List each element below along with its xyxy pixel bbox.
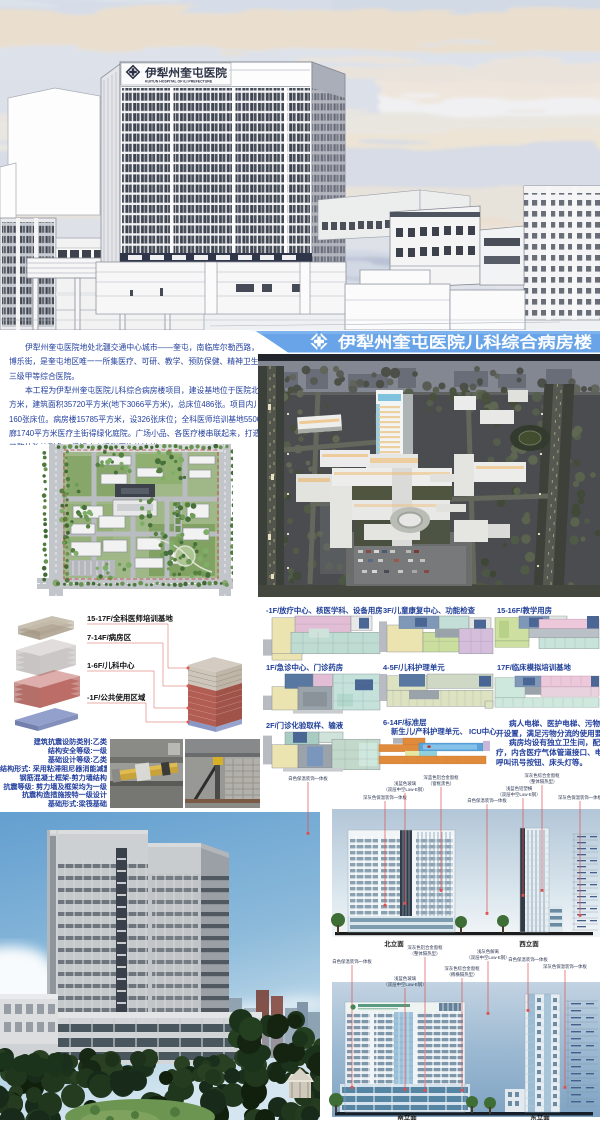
svg-text:东立面: 东立面 bbox=[530, 1113, 550, 1121]
svg-text:-1F/公共使用区域: -1F/公共使用区域 bbox=[87, 692, 146, 702]
svg-text:1-6F/儿科中心: 1-6F/儿科中心 bbox=[87, 660, 135, 670]
svg-text:6-14F/标准层: 6-14F/标准层 bbox=[383, 718, 427, 727]
svg-text:1F/急诊中心、门诊药房: 1F/急诊中心、门诊药房 bbox=[266, 663, 343, 672]
svg-text:4-5F/儿科护理单元: 4-5F/儿科护理单元 bbox=[383, 663, 445, 672]
svg-text:2F/门诊化验取样、输液: 2F/门诊化验取样、输液 bbox=[266, 721, 344, 730]
svg-text:新生儿/产科护理单元、 ICU中心: 新生儿/产科护理单元、 ICU中心 bbox=[391, 727, 497, 736]
svg-text:15-17F/全科医师培训基地: 15-17F/全科医师培训基地 bbox=[87, 613, 173, 623]
svg-text:3F/儿童康复中心、功能检查: 3F/儿童康复中心、功能检查 bbox=[383, 606, 476, 615]
svg-text:KUITUN HOSPITAL OF ILI PREFECT: KUITUN HOSPITAL OF ILI PREFECTURE bbox=[145, 80, 213, 84]
svg-text:15-16F/教学用房: 15-16F/教学用房 bbox=[497, 606, 552, 615]
svg-text:北立面: 北立面 bbox=[384, 939, 404, 948]
svg-text:西立面: 西立面 bbox=[519, 939, 539, 948]
svg-text:17F/临床模拟培训基地: 17F/临床模拟培训基地 bbox=[497, 663, 572, 672]
svg-text:7-14F/病房区: 7-14F/病房区 bbox=[87, 632, 132, 642]
svg-text:南立面: 南立面 bbox=[397, 1113, 417, 1121]
svg-text:-1F/放疗中心、核医学科、设备用房: -1F/放疗中心、核医学科、设备用房 bbox=[266, 606, 383, 615]
svg-text:伊犁州奎屯医院: 伊犁州奎屯医院 bbox=[144, 66, 227, 80]
svg-text:伊犁州奎屯医院儿科综合病房楼: 伊犁州奎屯医院儿科综合病房楼 bbox=[337, 333, 593, 352]
